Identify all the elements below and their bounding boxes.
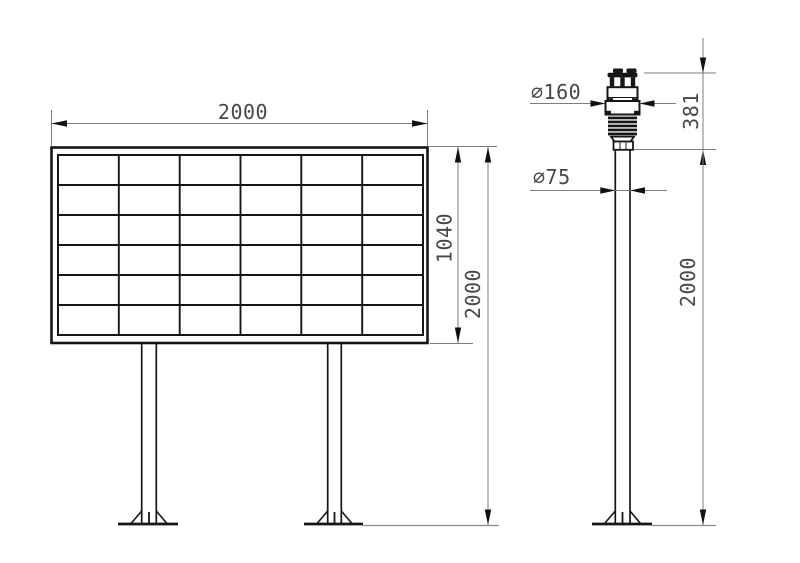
board-leg-right [304,344,363,524]
gusset [341,511,352,524]
arrowhead-down [700,510,706,526]
arrowhead-right [412,120,428,127]
technical-drawing-page: 2000 1040 2000 [0,0,800,563]
arrowhead-down [700,58,706,74]
arrowhead-down [455,328,461,344]
technical-drawing-canvas: 2000 1040 2000 [0,0,800,563]
sensor-top-nub [627,69,637,74]
dim-label-panel-height: 1040 [433,213,457,263]
arrowhead-left [640,100,655,106]
dim-label-pole-diameter: ∅75 [533,165,571,189]
dim-label-panel-overall-height: 2000 [461,269,485,319]
arrowhead-right [600,187,615,193]
gusset [317,511,328,524]
sensor-cap [608,73,638,78]
dim-pole-overall-height: 2000 [676,150,706,526]
sensor-mid-body [606,101,640,115]
dim-pole-diameter: ∅75 [530,165,667,194]
sensor-radiation-shield [608,117,637,136]
pole-base-plate [592,511,652,524]
sensor-upper-body [608,87,638,101]
weather-sensor [606,69,640,150]
arrowhead-left [52,120,68,127]
dim-label-sensor-diameter: ∅160 [531,80,581,104]
gusset [605,511,616,524]
gusset [131,511,142,524]
display-board-view [52,148,500,526]
arrowhead-up [485,147,491,163]
board-leg-left [118,344,178,524]
base-plate-left [118,511,178,524]
arrowhead-down [485,510,491,526]
dim-label-pole-overall-height: 2000 [676,257,700,307]
sensor-pole [615,150,630,524]
base-plate-right [304,511,363,524]
sensor-top-nub [613,69,623,74]
gusset [156,511,167,524]
arrowhead-right [591,100,606,106]
sensor-mount-collar [614,142,634,150]
arrowhead-up [455,147,461,163]
gusset [630,511,641,524]
dim-sensor-height: 381 [634,38,716,165]
board-module-grid [58,155,423,335]
dim-sensor-diameter: ∅160 [530,80,676,107]
dim-label-panel-width: 2000 [218,100,268,124]
dim-panel-overall-height: 2000 [461,147,491,525]
sensor-cap-posts [610,77,635,87]
dim-label-sensor-height: 381 [679,92,703,130]
dim-panel-width: 2000 [52,100,428,146]
arrowhead-left [630,187,645,193]
